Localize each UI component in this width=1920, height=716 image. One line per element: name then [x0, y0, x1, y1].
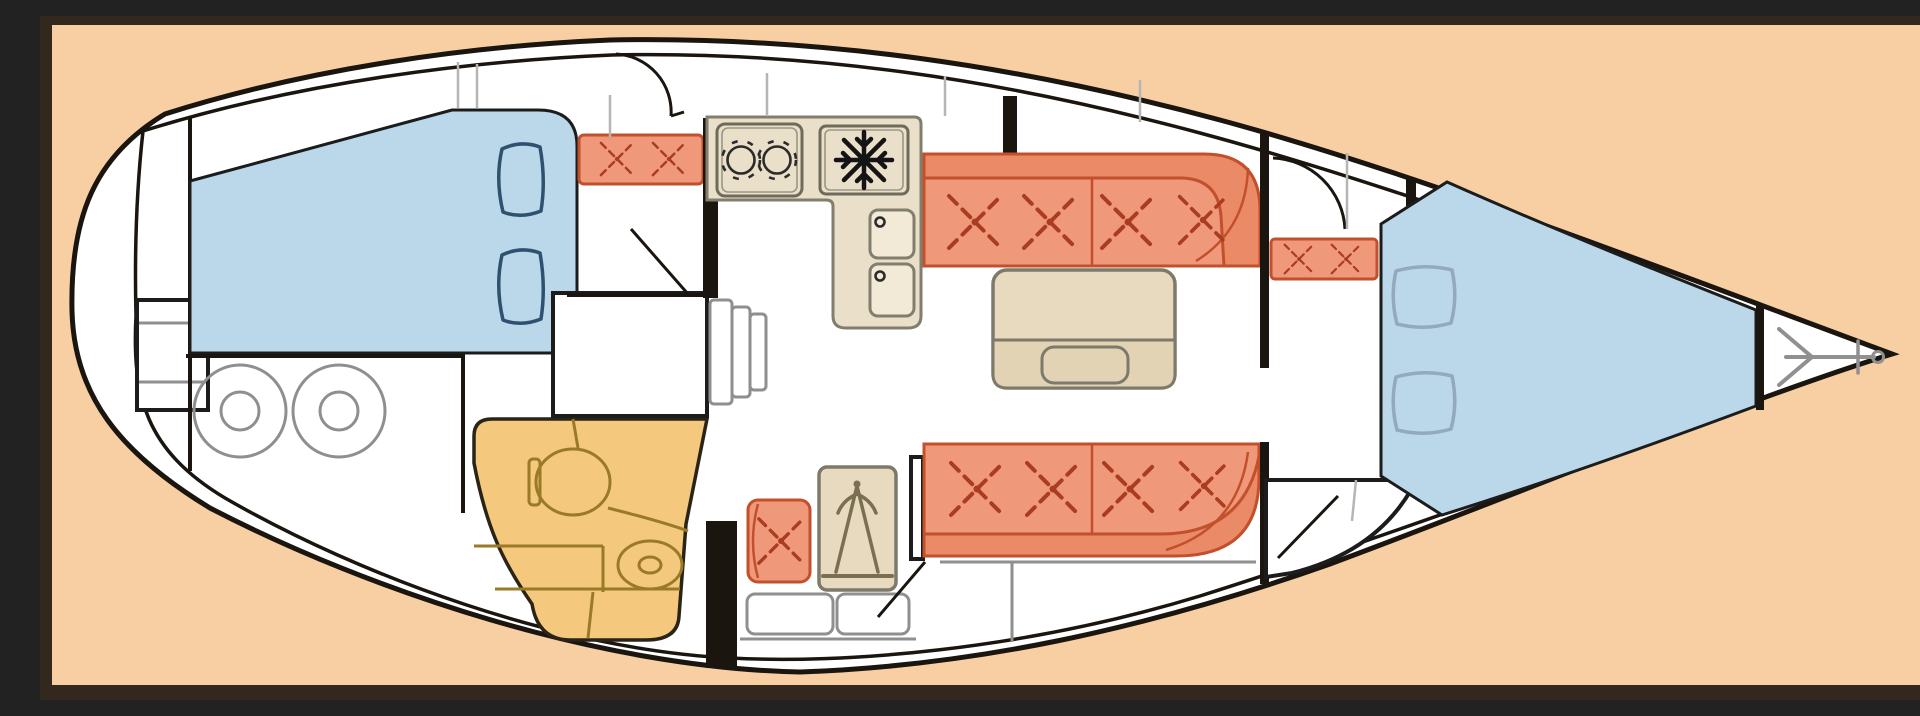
salon-table	[993, 270, 1175, 388]
floor-plan-canvas	[40, 16, 1920, 700]
port-settee-cushion	[924, 178, 1224, 266]
sink-icon	[870, 210, 914, 258]
entry-seat	[1271, 239, 1377, 279]
aft-cabin-seat	[579, 135, 703, 184]
snowflake-icon	[836, 132, 892, 188]
mast-pillar	[911, 457, 923, 559]
forward-bulkhead-upper	[1260, 134, 1269, 368]
wall-stub	[1003, 96, 1017, 154]
engine-box	[553, 293, 707, 416]
boat-floor-plan: Sailboat interior layout plan, bow point…	[40, 16, 1920, 700]
head-bulkhead	[706, 521, 737, 668]
forepeak-bulkhead	[1756, 306, 1764, 410]
